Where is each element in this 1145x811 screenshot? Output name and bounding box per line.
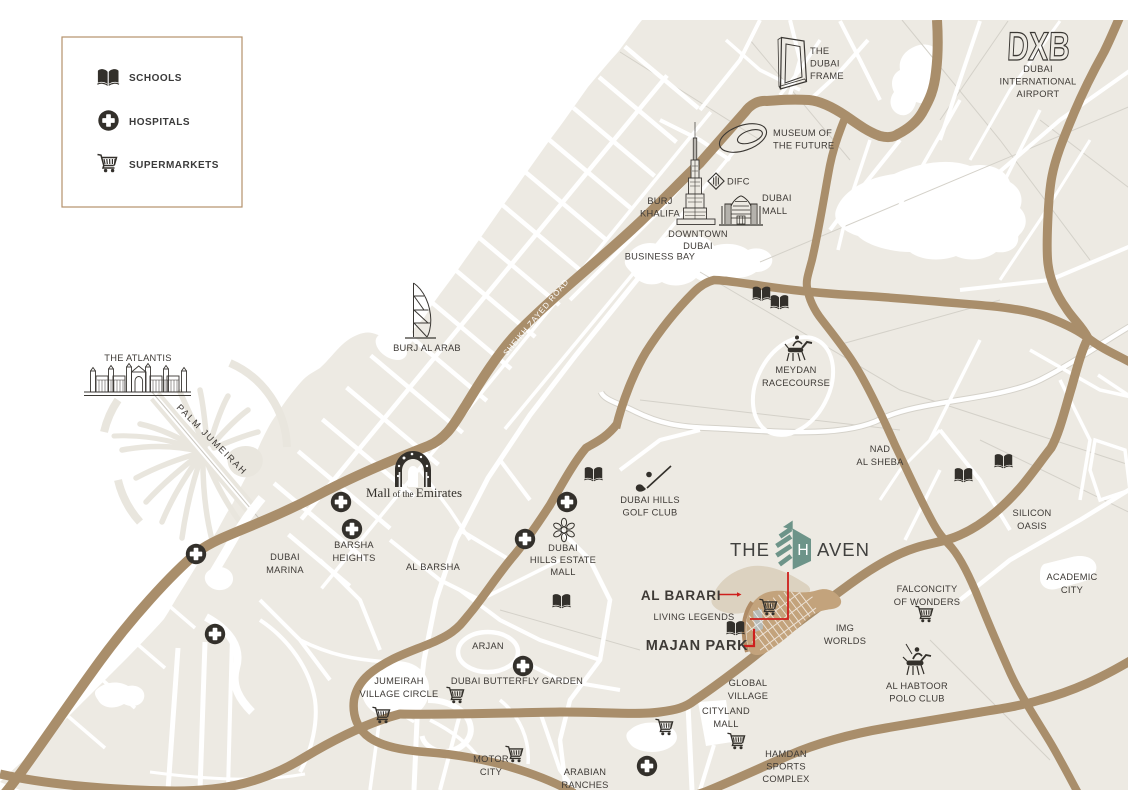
svg-text:HOSPITALS: HOSPITALS [129, 117, 190, 128]
svg-text:SCHOOLS: SCHOOLS [129, 73, 182, 84]
svg-text:BURJ AL ARAB: BURJ AL ARAB [393, 343, 461, 353]
svg-text:THE: THE [730, 539, 770, 560]
svg-text:AVEN: AVEN [817, 539, 870, 560]
svg-text:DIFC: DIFC [727, 177, 750, 187]
svg-text:MAJAN PARK: MAJAN PARK [646, 638, 749, 654]
svg-text:DXB: DXB [1006, 25, 1071, 69]
svg-text:THE ATLANTIS: THE ATLANTIS [104, 353, 171, 363]
svg-text:ARJAN: ARJAN [472, 641, 504, 651]
svg-text:HAMDANSPORTSCOMPLEX: HAMDANSPORTSCOMPLEX [762, 749, 809, 784]
svg-text:LIVING LEGENDS: LIVING LEGENDS [654, 612, 735, 622]
svg-text:SUPERMARKETS: SUPERMARKETS [129, 160, 219, 171]
svg-text:BUSINESS BAY: BUSINESS BAY [625, 252, 696, 262]
svg-text:DUBAI BUTTERFLY GARDEN: DUBAI BUTTERFLY GARDEN [451, 676, 583, 686]
svg-text:AL BARARI: AL BARARI [641, 588, 721, 603]
svg-text:H: H [797, 542, 809, 559]
svg-text:AL BARSHA: AL BARSHA [406, 562, 461, 572]
